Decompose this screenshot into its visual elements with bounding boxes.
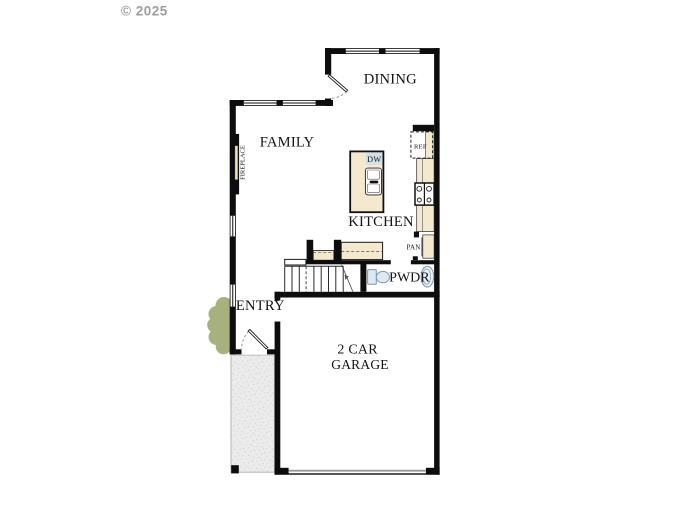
svg-text:KITCHEN: KITCHEN — [348, 214, 414, 230]
svg-text:DW: DW — [367, 155, 381, 164]
svg-text:REF: REF — [414, 144, 427, 151]
svg-text:2 CAR: 2 CAR — [337, 343, 378, 358]
svg-text:PWDR: PWDR — [389, 271, 430, 286]
svg-text:PAN: PAN — [407, 243, 421, 251]
svg-text:FIREPLACE: FIREPLACE — [240, 145, 247, 180]
svg-text:FAMILY: FAMILY — [260, 135, 315, 151]
svg-text:© 2025: © 2025 — [121, 3, 168, 18]
svg-text:ENTRY: ENTRY — [236, 298, 285, 314]
svg-text:DINING: DINING — [364, 71, 417, 87]
svg-text:GARAGE: GARAGE — [331, 357, 388, 372]
